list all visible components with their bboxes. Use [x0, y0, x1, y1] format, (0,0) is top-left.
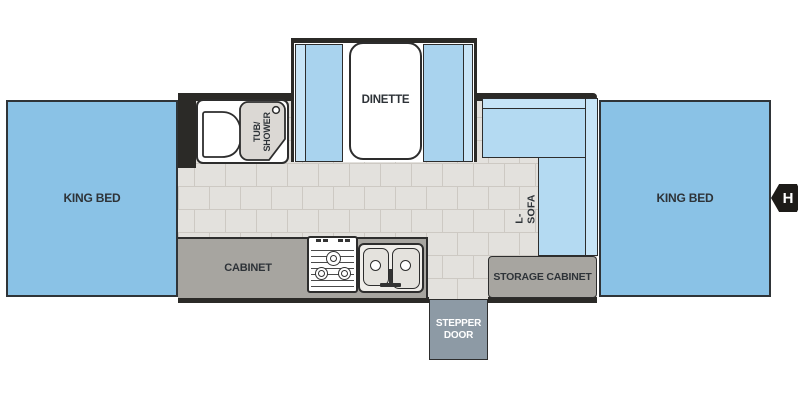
storage-cabinet: STORAGE CABINET [488, 256, 597, 298]
left-king-bed: KING BED [6, 100, 178, 297]
stove-knob-icon [316, 239, 321, 242]
h-marker-label: H [776, 190, 794, 207]
wall-left [178, 93, 196, 168]
stove [307, 236, 358, 293]
l-sofa-back-right [585, 98, 598, 256]
stove-knob-icon [338, 239, 343, 242]
storage-cabinet-label: STORAGE CABINET [489, 257, 596, 297]
h-marker: H [771, 184, 798, 212]
stepper-door: STEPPER DOOR [429, 299, 488, 360]
stove-knob-icon [345, 239, 350, 242]
dinette-bench-left [295, 44, 343, 162]
right-king-bed: KING BED [599, 100, 771, 297]
sink [358, 243, 424, 293]
dinette-bench-left-back [296, 45, 306, 161]
drain-icon [400, 260, 411, 271]
tub-shower-label: TUB/ SHOWER [253, 112, 273, 151]
burner-icon [338, 267, 351, 280]
burner-icon [315, 267, 328, 280]
right-king-bed-label: KING BED [601, 102, 769, 295]
burner-icon [326, 251, 341, 266]
dinette-table: DINETTE [349, 42, 422, 160]
tub-shower-label-wrap: TUB/ SHOWER [241, 104, 285, 160]
cabinet-label: CABINET [185, 260, 311, 276]
toilet [203, 112, 241, 157]
left-king-bed-label: KING BED [8, 102, 176, 295]
stove-knob-icon [323, 239, 328, 242]
dinette-bench-right-back [463, 45, 472, 161]
stepper-door-label: STEPPER DOOR [430, 300, 487, 359]
dinette-label: DINETTE [351, 44, 420, 158]
faucet-base-icon [380, 283, 401, 287]
drain-icon [370, 260, 381, 271]
l-sofa-label-wrap: L-SOFA [514, 168, 538, 250]
l-sofa-seat-top [482, 108, 598, 158]
dinette-bench-right [423, 44, 473, 162]
floorplan: KING BED KING BED DINETTE TUB/ SHOWER L-… [0, 0, 800, 400]
l-sofa-label: L-SOFA [514, 194, 538, 223]
